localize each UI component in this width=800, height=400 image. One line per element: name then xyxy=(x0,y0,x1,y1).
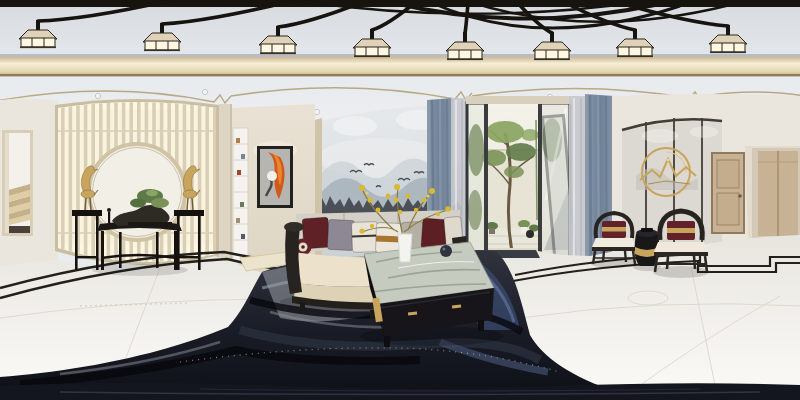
sofa-pillow xyxy=(327,219,355,250)
panorama-scene xyxy=(0,0,800,400)
display-shelf xyxy=(233,128,248,264)
door-handle xyxy=(738,194,742,198)
table-ornament xyxy=(440,245,452,257)
lattice-moon-screen xyxy=(55,96,219,276)
spotlight xyxy=(202,89,207,94)
interior-door xyxy=(711,152,745,234)
wardrobe-doors xyxy=(752,148,800,248)
staircase-doorway xyxy=(2,130,33,236)
panorama-screenshot xyxy=(0,0,800,400)
wall-pilaster xyxy=(219,104,232,268)
door-frame-post xyxy=(538,103,542,269)
gold-cornice-band xyxy=(0,54,800,76)
door-frame-post xyxy=(484,103,488,265)
spotlight xyxy=(314,109,319,114)
abstract-orange-painting xyxy=(257,146,293,208)
spotlight xyxy=(95,93,100,98)
